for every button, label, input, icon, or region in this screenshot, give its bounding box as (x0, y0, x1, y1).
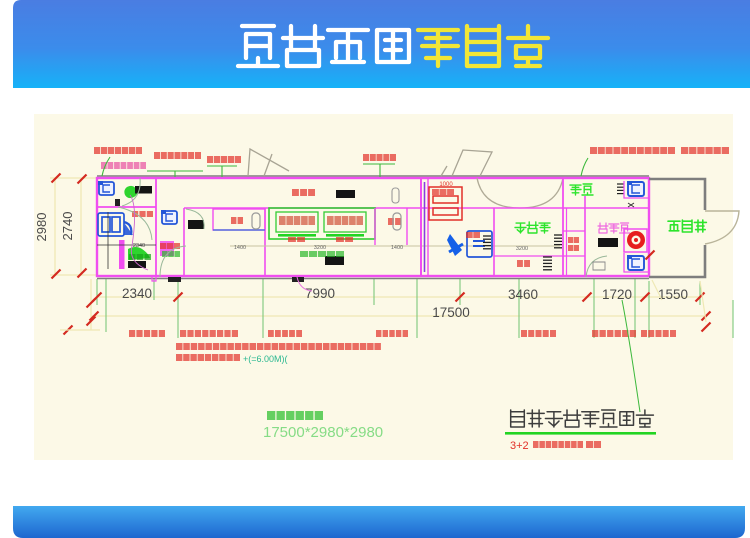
svg-text:2740: 2740 (60, 212, 75, 241)
svg-text:2980: 2980 (34, 213, 49, 242)
svg-text:17500: 17500 (432, 305, 470, 320)
svg-text:3+2: 3+2 (510, 440, 529, 452)
svg-text:3200: 3200 (516, 246, 528, 252)
svg-text:1000: 1000 (439, 182, 453, 188)
svg-text:17500*2980*2980: 17500*2980*2980 (263, 424, 383, 441)
svg-text:1400: 1400 (234, 245, 246, 251)
svg-text:2340: 2340 (122, 286, 152, 301)
svg-text:7990: 7990 (305, 286, 335, 301)
svg-text:+(=6.00M)(: +(=6.00M)( (243, 354, 288, 364)
svg-text:3460: 3460 (508, 287, 538, 302)
svg-text:1720: 1720 (602, 287, 632, 302)
svg-text:3200: 3200 (314, 245, 326, 251)
svg-text:1400: 1400 (391, 245, 403, 251)
